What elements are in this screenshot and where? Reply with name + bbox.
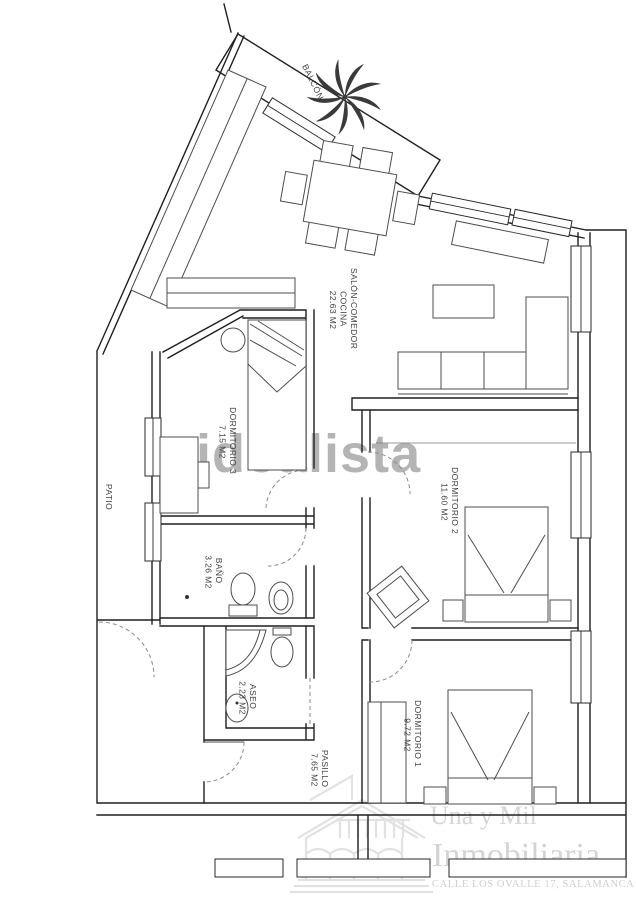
room-label-bano: BAÑO 3.26 M2 <box>204 555 225 589</box>
window-icon <box>571 246 591 332</box>
room-aseo: ASEO 2.23 M2 <box>226 628 293 722</box>
door-arc-dormitorio1 <box>368 640 412 682</box>
wardrobe-icon <box>368 702 406 803</box>
toilet-icon <box>229 573 257 616</box>
bottom-band-segment <box>297 859 430 877</box>
room-dormitorio2: DORMITORIO 2 11.60 M2 <box>367 467 571 628</box>
window-icon <box>512 209 572 236</box>
room-dormitorio1: DORMITORIO 1 9.72 M2 <box>368 690 556 804</box>
bed-icon <box>465 507 548 622</box>
toilet-icon <box>271 628 293 667</box>
nightstand-icon <box>534 787 556 804</box>
bed-icon <box>248 320 306 470</box>
window-icon <box>429 193 511 225</box>
room-bano: BAÑO 3.26 M2 <box>185 555 293 616</box>
window-icon <box>571 452 591 538</box>
chair-icon <box>367 566 429 628</box>
nightstand-icon <box>443 600 463 621</box>
drain-icon <box>185 595 189 599</box>
room-label-dormitorio2: DORMITORIO 2 11.60 M2 <box>440 467 461 537</box>
floor-plan-image: idealista Una y Mil Inmobiliaria CALLE L… <box>0 0 636 900</box>
window-icon <box>145 503 161 561</box>
room-salon: SALÓN-COMEDOR COCINA 22.63 M2 <box>131 70 568 394</box>
coffee-table-icon <box>433 285 494 318</box>
room-patio: PATIO <box>104 484 114 510</box>
nightstand-icon <box>424 787 446 804</box>
bed-icon <box>448 690 532 804</box>
shower-icon <box>226 630 266 676</box>
room-dormitorio3: DORMITORIO 3 7.15 M2 <box>160 320 306 513</box>
room-label-pasillo: PASILLO 7.65 M2 <box>310 750 331 790</box>
bottom-band-segment <box>449 859 626 877</box>
nightstand-icon <box>550 600 571 621</box>
bottom-band-segment <box>215 859 283 877</box>
floor-plan-page: idealista Una y Mil Inmobiliaria CALLE L… <box>0 0 636 900</box>
window-icon <box>145 418 161 476</box>
window-icon <box>571 631 591 703</box>
door-arc-entry <box>204 742 244 782</box>
bidet-icon <box>269 582 293 614</box>
door-arc-bano <box>268 528 306 566</box>
room-label-aseo: ASEO 2.23 M2 <box>238 681 259 715</box>
dining-table-icon <box>274 135 426 261</box>
bedside-table-icon <box>221 328 245 352</box>
room-label-patio: PATIO <box>104 484 114 510</box>
agency-address: CALLE LOS OVALLE 17, SALAMANCA <box>432 879 634 890</box>
room-label-salon: SALÓN-COMEDOR COCINA 22.63 M2 <box>328 268 359 352</box>
watermark-layer: idealista Una y Mil Inmobiliaria CALLE L… <box>196 424 634 892</box>
room-pasillo: PASILLO 7.65 M2 <box>310 750 331 790</box>
door-arc-patio <box>99 622 154 677</box>
